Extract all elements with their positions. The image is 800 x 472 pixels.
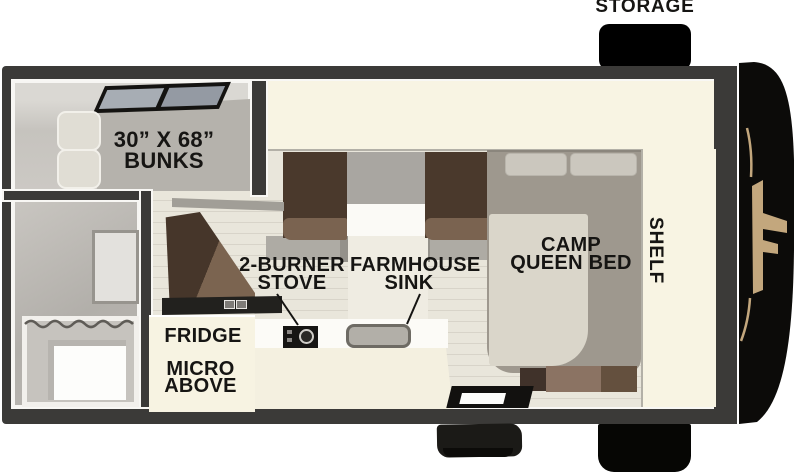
entry-step-tread [459, 393, 506, 404]
accent-stripe-top [747, 128, 751, 177]
rear-bumper-block [598, 424, 691, 472]
accent-stripe-bottom [741, 298, 750, 341]
bed-pillow-right [570, 153, 637, 176]
sink-label-line2: SINK [350, 274, 468, 292]
stove-knob-top [287, 330, 292, 334]
bed-pillow-left [505, 153, 567, 176]
bathroom-window [92, 230, 139, 304]
bathroom-top-wall [2, 189, 152, 202]
shelf-label: SHELF [646, 208, 665, 294]
foot-storage-box-right [601, 366, 637, 392]
bunks-label-line1: 30” X 68” [88, 129, 240, 150]
stove-label: 2-BURNER STOVE [233, 256, 351, 292]
storage-box-shape [599, 24, 691, 70]
overhead-shelf-band [263, 81, 714, 151]
brand-logo-icon [752, 180, 787, 294]
burner-icon [299, 329, 314, 344]
entry-step-well [446, 386, 533, 408]
cabinet-handle-left [224, 300, 235, 309]
stove-knob-bottom [287, 338, 292, 342]
bunk-window-icon [93, 82, 231, 113]
bunks-label-line2: BUNKS [88, 150, 240, 171]
bunk-partition-wall [250, 79, 268, 197]
window-pane-left [99, 88, 164, 109]
bed-label: CAMP QUEEN BED [496, 236, 646, 272]
dinette-cushion-right [425, 218, 489, 240]
stove-label-line2: STOVE [233, 274, 351, 292]
exterior-step-lip [443, 448, 513, 457]
micro-label-line2: ABOVE [153, 378, 248, 395]
foot-storage-box-mid [546, 366, 601, 392]
bed-label-line2: QUEEN BED [496, 254, 646, 272]
dinette-cushion-left [283, 218, 347, 240]
shower-tub [48, 340, 126, 400]
stove-cooktop [283, 326, 318, 348]
floorplan-canvas: STORAGE 30” X 68” BUNKS [0, 0, 800, 472]
cabinet-handle-right [236, 300, 247, 309]
micro-label: MICRO ABOVE [153, 361, 248, 395]
fridge-label: FRIDGE [158, 326, 248, 346]
window-pane-right [160, 86, 225, 107]
counter-dark-edge [162, 296, 282, 315]
dinette-table-side [347, 204, 425, 236]
front-cap-shape [739, 62, 794, 424]
bunks-label: 30” X 68” BUNKS [88, 129, 240, 171]
dinette-table-top [347, 152, 425, 204]
storage-label: STORAGE [593, 0, 697, 16]
farmhouse-sink [346, 324, 411, 348]
kitchen-peninsula-front [255, 348, 453, 409]
sink-label: FARMHOUSE SINK [350, 256, 468, 292]
